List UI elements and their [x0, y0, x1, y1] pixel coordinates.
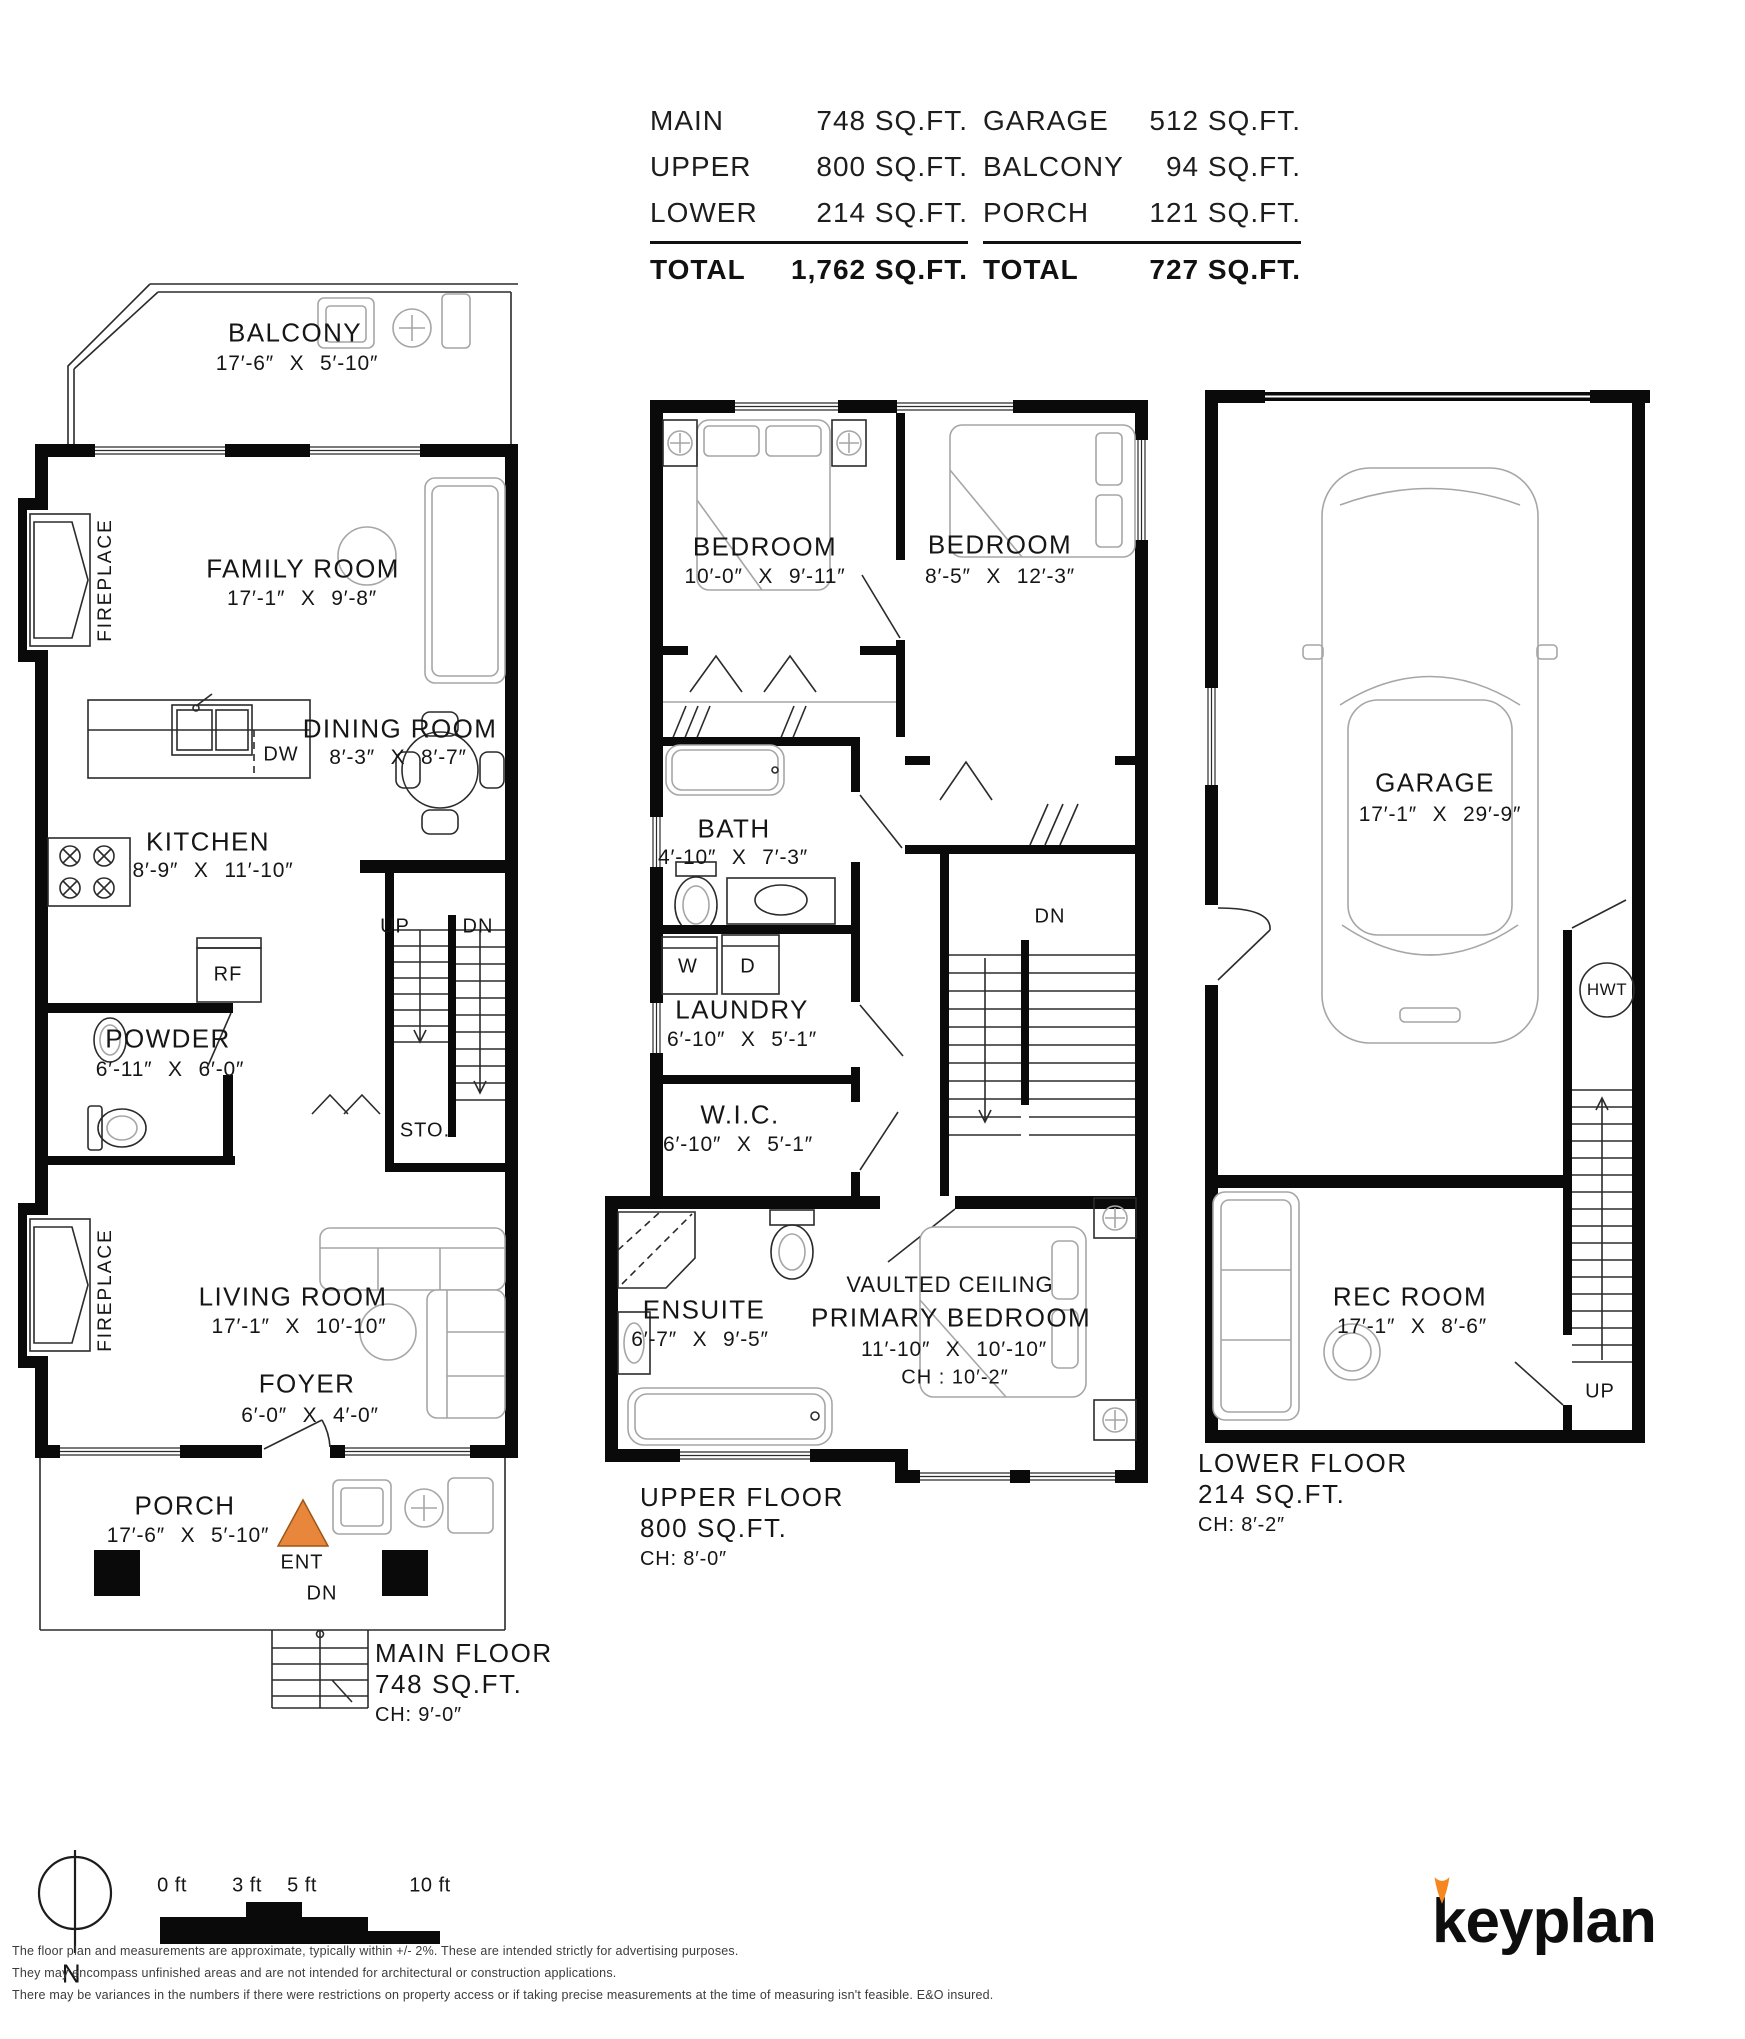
summary-label: BALCONY — [983, 144, 1124, 190]
fireplace-label-lower: FIREPLACE — [95, 1228, 117, 1352]
summary-label: GARAGE — [983, 98, 1109, 144]
room-label-garage: GARAGE — [1375, 768, 1495, 799]
floor-ceiling-height: CH: 8′-2″ — [1198, 1514, 1408, 1537]
floor-title: UPPER FLOOR — [640, 1482, 844, 1513]
summary-row: UPPER 800 SQ.FT. — [650, 144, 968, 190]
room-dims-foyer: 6′-0″ X 4′-0″ — [241, 1404, 379, 1428]
room-label-bedroom-left: BEDROOM — [693, 532, 837, 563]
room-label-kitchen: KITCHEN — [146, 827, 270, 858]
floor-ceiling-height: CH: 8′-0″ — [640, 1548, 844, 1571]
keyplan-logo-text: keyplan — [1432, 1887, 1656, 1956]
summary-total-row: TOTAL 727 SQ.FT. — [983, 241, 1301, 296]
summary-label: UPPER — [650, 144, 751, 190]
room-label-living-room: LIVING ROOM — [199, 1282, 388, 1313]
room-dims-primary-bedroom: 11′-10″ X 10′-10″ — [861, 1338, 1047, 1362]
storage-label: STO. — [400, 1120, 450, 1143]
room-dims-dining-room: 8′-3″ X 8′-7″ — [329, 746, 467, 770]
disclaimer-line-2: They may encompass unfinished areas and … — [12, 1966, 616, 1980]
room-label-dining-room: DINING ROOM — [303, 714, 498, 745]
room-label-rec-room: REC ROOM — [1333, 1282, 1487, 1313]
room-dims-bath: 4′-10″ X 7′-3″ — [658, 846, 808, 870]
stairs-down-label-upper: DN — [1035, 906, 1066, 929]
summary-value: 214 SQ.FT. — [816, 190, 968, 236]
summary-value: 94 SQ.FT. — [1166, 144, 1301, 190]
main-floor-linework — [18, 284, 518, 1708]
lower-floor-title-block: LOWER FLOOR 214 SQ.FT. CH: 8′-2″ — [1198, 1448, 1408, 1537]
scale-tick-10: 10 ft — [409, 1875, 450, 1898]
summary-label: LOWER — [650, 190, 758, 236]
keyplan-flame-icon — [1432, 1876, 1452, 1906]
room-dims-rec-room: 17′-1″ X 8′-6″ — [1337, 1315, 1487, 1339]
room-dims-bedroom-right: 8′-5″ X 12′-3″ — [925, 565, 1075, 589]
summary-row: LOWER 214 SQ.FT. — [650, 190, 968, 236]
entry-arrow-icon — [278, 1500, 328, 1546]
summary-value: 121 SQ.FT. — [1149, 190, 1301, 236]
room-label-bedroom-right: BEDROOM — [928, 530, 1072, 561]
floor-title: LOWER FLOOR — [1198, 1448, 1408, 1479]
summary-left-column: MAIN 748 SQ.FT. UPPER 800 SQ.FT. LOWER 2… — [650, 98, 968, 296]
floor-area: 748 SQ.FT. — [375, 1669, 553, 1700]
entry-label: ENT — [281, 1552, 324, 1575]
room-dims-kitchen: 8′-9″ X 11′-10″ — [133, 859, 294, 883]
room-label-primary-bedroom: PRIMARY BEDROOM — [811, 1303, 1091, 1334]
room-dims-family-room: 17′-1″ X 9′-8″ — [227, 587, 377, 611]
summary-row: PORCH 121 SQ.FT. — [983, 190, 1301, 236]
room-label-powder: POWDER — [105, 1024, 230, 1055]
summary-total-row: TOTAL 1,762 SQ.FT. — [650, 241, 968, 296]
summary-value: 512 SQ.FT. — [1149, 98, 1301, 144]
room-dims-wic: 6′-10″ X 5′-1″ — [663, 1133, 813, 1157]
porch-down-label: DN — [307, 1583, 338, 1606]
disclaimer-line-3: There may be variances in the numbers if… — [12, 1988, 993, 2002]
summary-total-value: 727 SQ.FT. — [1149, 244, 1301, 296]
scale-tick-5: 5 ft — [287, 1875, 317, 1898]
scale-tick-3: 3 ft — [232, 1875, 262, 1898]
summary-value: 800 SQ.FT. — [816, 144, 968, 190]
floorplan-linework — [0, 0, 1745, 2039]
summary-total-label: TOTAL — [650, 244, 746, 296]
room-dims-bedroom-left: 10′-0″ X 9′-11″ — [685, 565, 846, 589]
stairs-down-label: DN — [463, 916, 494, 939]
scale-tick-0: 0 ft — [157, 1875, 187, 1898]
summary-value: 748 SQ.FT. — [816, 98, 968, 144]
room-label-ensuite: ENSUITE — [643, 1295, 765, 1326]
room-label-laundry: LAUNDRY — [675, 995, 809, 1026]
fridge-label: RF — [214, 964, 243, 987]
room-dims-balcony: 17′-6″ X 5′-10″ — [216, 352, 378, 376]
room-label-porch: PORCH — [135, 1491, 236, 1522]
upper-floor-title-block: UPPER FLOOR 800 SQ.FT. CH: 8′-0″ — [640, 1482, 844, 1571]
room-dims-living-room: 17′-1″ X 10′-10″ — [212, 1315, 387, 1339]
disclaimer-line-1: The floor plan and measurements are appr… — [12, 1944, 739, 1958]
summary-label: PORCH — [983, 190, 1089, 236]
floor-area: 214 SQ.FT. — [1198, 1479, 1408, 1510]
summary-row: MAIN 748 SQ.FT. — [650, 98, 968, 144]
summary-label: MAIN — [650, 98, 724, 144]
floor-area: 800 SQ.FT. — [640, 1513, 844, 1544]
room-label-family-room: FAMILY ROOM — [206, 554, 400, 585]
stairs-up-label-lower: UP — [1585, 1381, 1615, 1404]
keyplan-logo: keyplan — [1432, 1886, 1656, 1957]
fireplace-label-upper: FIREPLACE — [95, 518, 117, 642]
main-floor-title-block: MAIN FLOOR 748 SQ.FT. CH: 9′-0″ — [375, 1638, 553, 1727]
summary-row: BALCONY 94 SQ.FT. — [983, 144, 1301, 190]
floor-title: MAIN FLOOR — [375, 1638, 553, 1669]
floor-ceiling-height: CH: 9′-0″ — [375, 1704, 553, 1727]
summary-total-value: 1,762 SQ.FT. — [791, 244, 968, 296]
dryer-label: D — [740, 956, 755, 979]
room-dims-laundry: 6′-10″ X 5′-1″ — [667, 1028, 817, 1052]
scale-bar-icon — [160, 1902, 440, 1944]
room-dims-ensuite: 6′-7″ X 9′-5″ — [631, 1328, 769, 1352]
room-label-balcony: BALCONY — [228, 318, 362, 349]
stairs-up-label: UP — [380, 916, 410, 939]
hot-water-tank-label: HWT — [1587, 980, 1627, 1000]
vaulted-ceiling-note: VAULTED CEILING — [846, 1272, 1053, 1298]
summary-total-label: TOTAL — [983, 244, 1079, 296]
summary-right-column: GARAGE 512 SQ.FT. BALCONY 94 SQ.FT. PORC… — [983, 98, 1301, 296]
room-label-bath: BATH — [697, 814, 770, 845]
washer-label: W — [678, 956, 698, 979]
primary-ceiling-height: CH : 10′-2″ — [901, 1367, 1008, 1390]
north-compass-icon — [39, 1850, 111, 1953]
summary-row: GARAGE 512 SQ.FT. — [983, 98, 1301, 144]
room-label-wic: W.I.C. — [700, 1100, 779, 1131]
room-label-foyer: FOYER — [259, 1369, 356, 1400]
room-dims-powder: 6′-11″ X 6′-0″ — [96, 1058, 244, 1082]
dishwasher-label: DW — [263, 744, 298, 767]
floorplan-page: MAIN 748 SQ.FT. UPPER 800 SQ.FT. LOWER 2… — [0, 0, 1745, 2039]
room-dims-porch: 17′-6″ X 5′-10″ — [107, 1524, 269, 1548]
room-dims-garage: 17′-1″ X 29′-9″ — [1359, 803, 1521, 827]
